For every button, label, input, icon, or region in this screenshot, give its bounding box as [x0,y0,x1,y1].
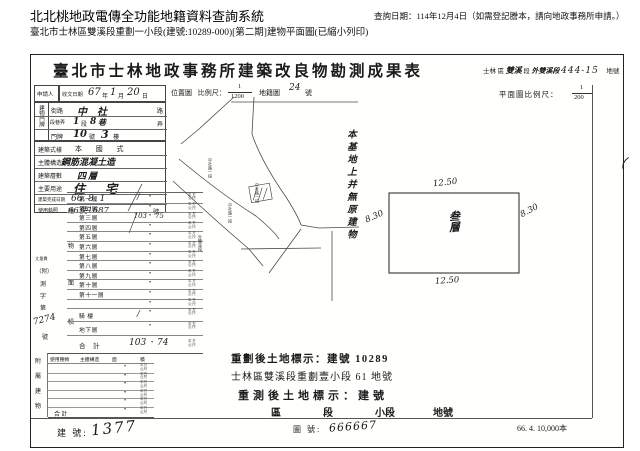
handwritten-strokes [116,175,166,245]
app-background: { "header": { "system_title": "北北桃地政電傳全功… [0,0,640,451]
land-line3: 重測後土地標示：建號 [238,387,388,403]
fileno-p3: 字 [40,291,46,300]
attr-structure-value: 鋼筋混凝土造 [61,155,115,168]
fee-label: 丈量費 [35,256,48,262]
number-hw2: 3 [101,128,109,141]
qilou-mark-hw: / [137,309,140,318]
attached-rows: •平方公尺•平方公尺•平方公尺•平方公尺•平方公尺 [48,364,154,407]
attr-license-label: 使用執照 [38,207,58,214]
location-map [166,96,368,314]
plan-scale-numerator: 1 [580,84,583,91]
street-suffix: 路 [157,106,163,115]
applicant-label: 申請人 [37,90,54,98]
system-title: 北北桃地政電傳全功能地籍資料查詢系統 [30,6,264,25]
map-scale-numerator: 1 [238,83,241,90]
received-day-hw: 20 [127,87,140,98]
attached-side-2: 屬 [35,371,41,380]
attr-structure-label: 主體構造 [38,158,62,167]
lane-t2: 巷 [98,117,106,128]
fileno-p4: 第 [40,303,46,312]
received-month-suffix: 月 [118,91,124,100]
inner-right-border [592,85,593,418]
street-name-hw: 中社 [77,103,117,118]
attached-unit: 平方公尺 [140,364,147,372]
number-label: 門牌 [51,132,63,141]
document-subtitle: 臺北市士林區雙溪段重劃一小段(建號:10289-000)[第二期]建物平面圖(已… [30,24,368,38]
plan-dim-bottom-hw: 12.50 [435,275,460,287]
applicant-cell: 申請人 [34,85,59,102]
received-year-suffix: 年 [102,91,108,100]
fileno-p1: （附） [36,267,53,275]
received-label: 收文日期 [62,91,83,98]
building-number-label: 建 號: [57,426,88,439]
lot-number-handwritten: 444-15 [561,66,599,76]
map-number-label: 圖 號: [293,424,321,435]
attached-total-row: 合 計 • 平方公尺 [48,407,154,418]
received-date-cell: 收文日期 67 年 1 月 20 日 [59,85,166,102]
land-line4-lot: 地號 [433,404,453,419]
door-plate-label: 建物門牌 [37,105,45,141]
plan-center-char-2: 層 [448,221,460,233]
plan-center-label: 叁 層 [449,211,460,233]
land-line4-section: 段 [323,404,333,419]
section-suffix: 段 [523,68,530,75]
floor-total-label: 合 計 [79,340,100,350]
received-year-hw: 67 [88,87,101,98]
attr-completed-label: 建築完成日期 [38,197,65,203]
door-plate-table: 建物門牌 街路 中社 路 段巷弄 1 段 8 巷 弄 門牌 10 號 3 樓 [34,102,166,141]
attached-header-row: 使用種類 主體構造 面 積 [48,354,154,364]
land-line4-district: 區 [271,404,281,419]
form-title-location: 士林 區 雙溪 段 外雙溪段 444-15 地號 [483,65,619,76]
land-line1: 重劃後土地標示：建號 10289 [231,351,389,366]
received-day-suffix: 日 [142,91,148,100]
fileno-hw: 7274 [32,312,57,327]
print-info: 66. 4. 10,000本 [517,423,567,434]
attached-header-use: 使用種類 [50,356,69,363]
qilou-label: 騎 樓 [79,311,94,320]
land-line4-subsection: 小段 [375,404,395,419]
lane-hw1: 1 [73,117,79,127]
fileno-p2: 測 [40,279,46,288]
lane-t1: 段 [81,119,87,128]
floor-total-v1-hw: 103 [129,338,146,348]
fileno-suffix: 號 [42,332,48,341]
attached-side-3: 建 [35,386,41,395]
attr-floors-label: 建築層數 [38,171,62,180]
plan-scale-denominator: 200 [574,94,584,101]
attr-use-label: 主要用途 [38,184,62,193]
section-handwritten: 雙溪 [506,65,522,75]
floor-total-row: 合 計 103 • 74 平方公尺 [67,336,203,354]
lane-hw2: 8 [90,117,96,127]
attr-style-value: 本 國 式 [75,144,130,154]
floor-total-v2-hw: 74 [157,338,168,348]
lot-suffix: 地號 [606,68,619,75]
number-t1: 號 [89,132,95,141]
road-label: 外雙溪段 [197,235,203,251]
attached-header-area-1: 面 [112,356,117,363]
form-title: 臺北市士林地政事務所建築改良物勘測成果表 [53,59,423,81]
attr-style-label: 建築式樣 [38,145,62,154]
number-hw1: 10 [73,129,87,140]
attached-side-1: 附 [35,356,41,365]
query-date: 查詢日期：114年12月4日（如需登記謄本，請向地政事務所申請。） [374,10,624,22]
attached-header-structure: 主體構造 [80,356,99,363]
site-note-hw: 本基地上并無原建物 [343,129,357,299]
district-suffix: 區 [498,68,505,75]
subsection-handwritten: 外雙溪段 [532,66,560,75]
road-label: 中社路一段 [207,158,213,178]
attached-total-label: 合 計 [54,409,68,418]
land-line2: 士林區雙溪段重劃壹小段 61 地號 [231,368,393,383]
cadastral-sheet-hw: 24 [289,83,300,93]
basement-label: 地下層 [79,325,98,334]
attached-header-area-2: 積 [140,356,145,363]
lane-label: 段巷弄 [50,119,65,126]
attached-unit: 平方公尺 [140,398,147,406]
number-t2: 樓 [113,132,119,141]
plan-scale-label: 平面圖比例尺： [499,89,559,100]
road-label: 中社路一段 [254,183,260,203]
lane-suffix: 弄 [157,119,163,128]
attached-unit: 平方公尺 [140,381,147,389]
attached-table: 使用種類 主體構造 面 積 •平方公尺•平方公尺•平方公尺•平方公尺•平方公尺 … [47,353,154,417]
district-printed: 士林 [483,68,496,75]
received-month-hw: 1 [110,87,116,98]
survey-form-scan: 臺北市士林地政事務所建築改良物勘測成果表 士林 區 雙溪 段 外雙溪段 444-… [30,54,624,448]
map-number-hw: 666667 [329,418,378,434]
road-label: 中社路一段 [227,203,233,223]
building-number-hw: 1377 [90,417,138,440]
street-label: 街路 [51,106,63,115]
attached-side-4: 物 [35,401,41,410]
basement-row: 地下層 • 平方公尺 [67,322,203,336]
margin-paren-mark: （ [611,152,628,174]
